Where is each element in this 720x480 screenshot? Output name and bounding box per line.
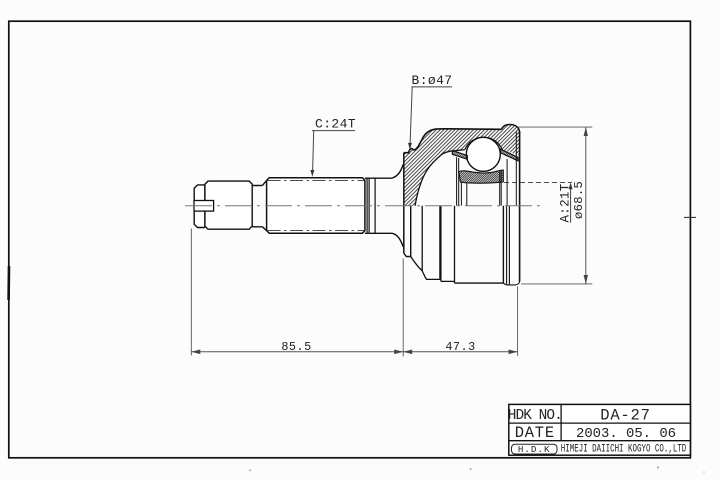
svg-text:2003. 05. 06: 2003. 05. 06	[576, 426, 676, 442]
svg-text:ø68.5: ø68.5	[572, 181, 586, 219]
svg-text:DATE: DATE	[515, 424, 555, 442]
svg-text:HDK NO.: HDK NO.	[508, 408, 562, 424]
svg-text:DA-27: DA-27	[600, 406, 651, 424]
svg-text:47.3: 47.3	[445, 340, 475, 354]
svg-text:C:24T: C:24T	[315, 116, 356, 131]
svg-text:H.D.K: H.D.K	[518, 444, 551, 455]
svg-text:B:ø47: B:ø47	[412, 73, 453, 88]
svg-text:85.5: 85.5	[281, 340, 311, 354]
svg-text:HIMEJI DAIICHI KOGYO CO.,LTD: HIMEJI DAIICHI KOGYO CO.,LTD	[561, 442, 687, 455]
